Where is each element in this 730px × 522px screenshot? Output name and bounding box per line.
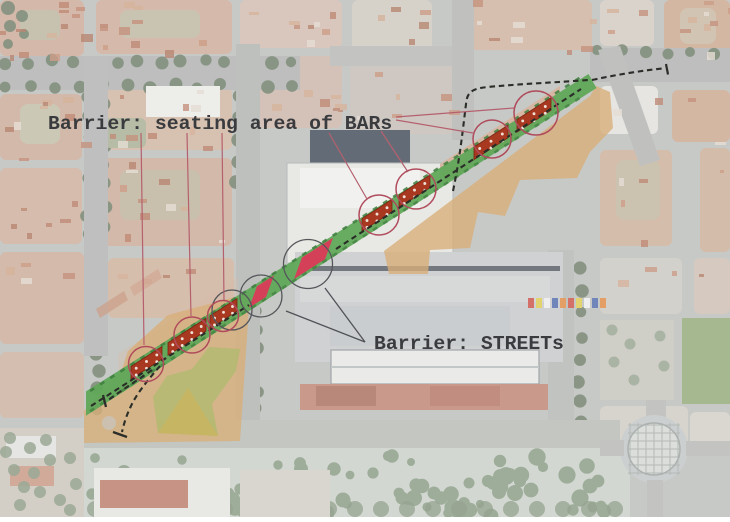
svg-text:Barrier: STREETs: Barrier: STREETs xyxy=(374,333,564,355)
svg-text:Barrier: seating area of BARs: Barrier: seating area of BARs xyxy=(48,113,392,135)
